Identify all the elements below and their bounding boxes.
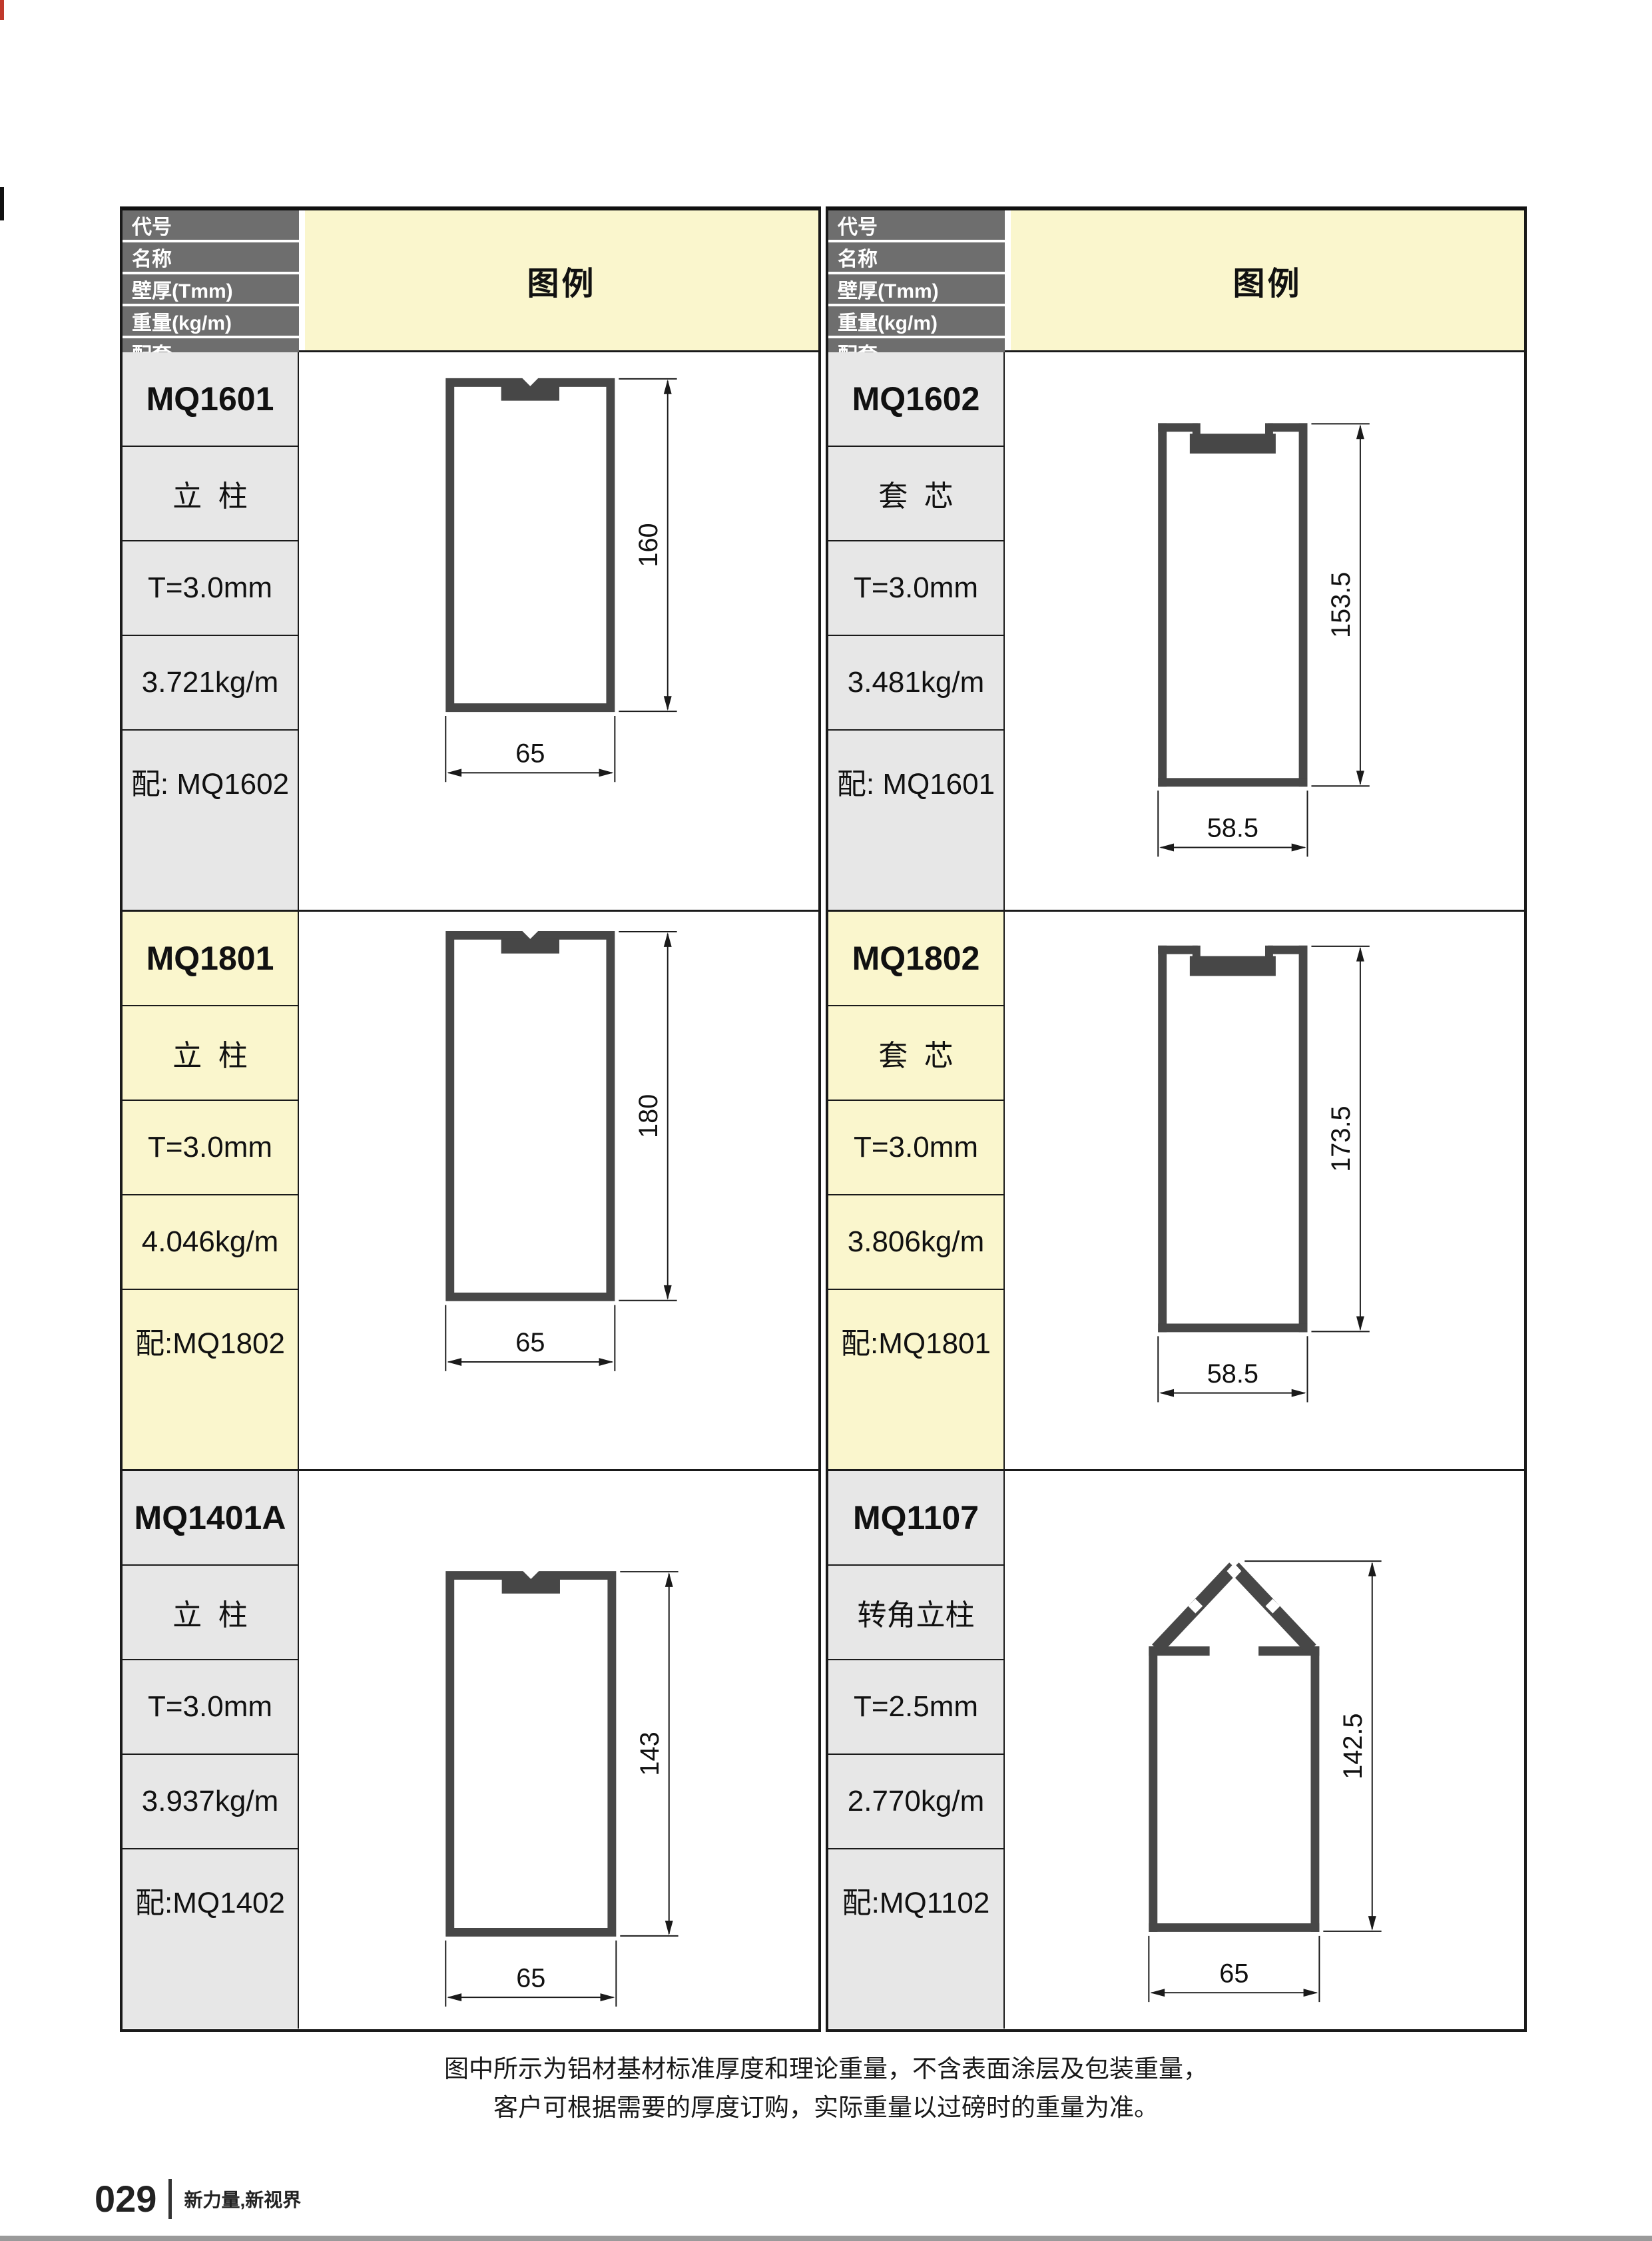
profile-illustration: 153.558.5 — [1005, 352, 1524, 910]
profile-row-mq1802: MQ1802 套 芯 T=3.0mm 3.806kg/m 配:MQ1801 17… — [828, 910, 1524, 1469]
svg-text:173.5: 173.5 — [1326, 1106, 1356, 1171]
profile-thickness: T=3.0mm — [123, 1101, 298, 1195]
header-row-weight: 重量(kg/m) — [123, 306, 299, 336]
profile-match: 配: MQ1602 — [123, 731, 298, 910]
svg-text:180: 180 — [634, 1094, 663, 1138]
svg-text:160: 160 — [634, 523, 663, 567]
header-row-thickness: 壁厚(Tmm) — [828, 274, 1005, 304]
header-row-weight: 重量(kg/m) — [828, 306, 1005, 336]
bottom-page-bar — [0, 2236, 1652, 2241]
page-footer: 029 新力量,新视界 — [95, 2179, 301, 2219]
profile-illustration: 14365 — [299, 1471, 818, 2029]
profile-weight: 3.806kg/m — [828, 1195, 1003, 1290]
svg-text:58.5: 58.5 — [1207, 814, 1258, 843]
profile-illustration: 16065 — [299, 352, 818, 910]
profile-drawing-mq1802: 173.558.5 — [1005, 912, 1524, 1469]
brand-slogan: 新力量,新视界 — [184, 2186, 301, 2212]
profile-thickness: T=3.0mm — [123, 1660, 298, 1755]
profile-drawing-mq1601: 16065 — [299, 352, 818, 910]
catalog-page: 代号 名称 壁厚(Tmm) 重量(kg/m) 配套 图例 MQ1601 立 柱 … — [0, 0, 1652, 2241]
table-header: 代号 名称 壁厚(Tmm) 重量(kg/m) 配套 图例 — [828, 210, 1524, 352]
legend-header: 图例 — [1011, 210, 1524, 350]
header-row-code: 代号 — [123, 210, 299, 240]
svg-text:58.5: 58.5 — [1207, 1359, 1258, 1389]
profile-illustration: 142.565 — [1005, 1471, 1524, 2029]
table-header: 代号 名称 壁厚(Tmm) 重量(kg/m) 配套 图例 — [123, 210, 818, 352]
profile-name: 套 芯 — [828, 1006, 1003, 1101]
profile-code: MQ1802 — [828, 912, 1003, 1006]
profile-table-left: 代号 名称 壁厚(Tmm) 重量(kg/m) 配套 图例 MQ1601 立 柱 … — [120, 206, 821, 2032]
profile-name: 立 柱 — [123, 1566, 298, 1660]
label-column: MQ1602 套 芯 T=3.0mm 3.481kg/m 配: MQ1601 — [828, 352, 1005, 910]
svg-text:143: 143 — [635, 1732, 665, 1775]
label-column: MQ1601 立 柱 T=3.0mm 3.721kg/m 配: MQ1602 — [123, 352, 299, 910]
profile-illustration: 173.558.5 — [1005, 912, 1524, 1469]
profile-match: 配:MQ1402 — [123, 1849, 298, 2029]
svg-text:65: 65 — [1219, 1959, 1248, 1988]
profile-row-mq1107: MQ1107 转角立柱 T=2.5mm 2.770kg/m 配:MQ1102 1… — [828, 1469, 1524, 2029]
profile-weight: 4.046kg/m — [123, 1195, 298, 1290]
header-gap — [299, 210, 305, 350]
profile-name: 立 柱 — [123, 447, 298, 541]
svg-text:65: 65 — [515, 1328, 545, 1357]
profile-code: MQ1602 — [828, 352, 1003, 447]
profile-weight: 3.937kg/m — [123, 1755, 298, 1849]
profile-name: 转角立柱 — [828, 1566, 1003, 1660]
profile-thickness: T=2.5mm — [828, 1660, 1003, 1755]
svg-text:142.5: 142.5 — [1338, 1713, 1368, 1779]
header-row-thickness: 壁厚(Tmm) — [123, 274, 299, 304]
footer-divider — [168, 2179, 172, 2219]
label-column: MQ1107 转角立柱 T=2.5mm 2.770kg/m 配:MQ1102 — [828, 1471, 1005, 2029]
profile-code: MQ1601 — [123, 352, 298, 447]
header-label-column: 代号 名称 壁厚(Tmm) 重量(kg/m) 配套 — [828, 210, 1005, 350]
profile-drawing-mq1602: 153.558.5 — [1005, 352, 1524, 910]
profile-row-mq1601: MQ1601 立 柱 T=3.0mm 3.721kg/m 配: MQ1602 1… — [123, 352, 818, 910]
header-row-name: 名称 — [828, 242, 1005, 272]
svg-text:153.5: 153.5 — [1326, 572, 1356, 638]
profile-illustration: 18065 — [299, 912, 818, 1469]
header-row-name: 名称 — [123, 242, 299, 272]
profile-weight: 3.481kg/m — [828, 636, 1003, 731]
label-column: MQ1401A 立 柱 T=3.0mm 3.937kg/m 配:MQ1402 — [123, 1471, 299, 2029]
profile-name: 立 柱 — [123, 1006, 298, 1101]
profile-match: 配:MQ1801 — [828, 1290, 1003, 1469]
profile-drawing-mq1107: 142.565 — [1005, 1471, 1524, 2029]
header-row-code: 代号 — [828, 210, 1005, 240]
profile-weight: 3.721kg/m — [123, 636, 298, 731]
profile-table-right: 代号 名称 壁厚(Tmm) 重量(kg/m) 配套 图例 MQ1602 套 芯 … — [826, 206, 1527, 2032]
profile-thickness: T=3.0mm — [828, 541, 1003, 636]
profile-match: 配: MQ1601 — [828, 731, 1003, 910]
profile-row-mq1801: MQ1801 立 柱 T=3.0mm 4.046kg/m 配:MQ1802 18… — [123, 910, 818, 1469]
profile-name: 套 芯 — [828, 447, 1003, 541]
header-gap — [1005, 210, 1011, 350]
svg-text:65: 65 — [516, 1963, 545, 1993]
profile-row-mq1401a: MQ1401A 立 柱 T=3.0mm 3.937kg/m 配:MQ1402 1… — [123, 1469, 818, 2029]
page-number: 029 — [95, 2180, 156, 2218]
profile-code: MQ1801 — [123, 912, 298, 1006]
profile-match: 配:MQ1802 — [123, 1290, 298, 1469]
profile-thickness: T=3.0mm — [828, 1101, 1003, 1195]
footer-note-line1: 图中所示为铝材基材标准厚度和理论重量，不含表面涂层及包装重量， — [0, 2049, 1652, 2084]
profile-drawing-mq1401a: 14365 — [299, 1471, 818, 2029]
profile-code: MQ1107 — [828, 1471, 1003, 1566]
label-column: MQ1801 立 柱 T=3.0mm 4.046kg/m 配:MQ1802 — [123, 912, 299, 1469]
profile-row-mq1602: MQ1602 套 芯 T=3.0mm 3.481kg/m 配: MQ1601 1… — [828, 352, 1524, 910]
profile-weight: 2.770kg/m — [828, 1755, 1003, 1849]
profile-drawing-mq1801: 18065 — [299, 912, 818, 1469]
print-mark-red — [0, 0, 4, 20]
footer-note-line2: 客户可根据需要的厚度订购，实际重量以过磅时的重量为准。 — [0, 2087, 1652, 2123]
print-mark-black — [0, 187, 4, 220]
profile-code: MQ1401A — [123, 1471, 298, 1566]
svg-text:65: 65 — [515, 739, 545, 768]
profile-thickness: T=3.0mm — [123, 541, 298, 636]
legend-header: 图例 — [305, 210, 818, 350]
header-label-column: 代号 名称 壁厚(Tmm) 重量(kg/m) 配套 — [123, 210, 299, 350]
profile-match: 配:MQ1102 — [828, 1849, 1003, 2029]
label-column: MQ1802 套 芯 T=3.0mm 3.806kg/m 配:MQ1801 — [828, 912, 1005, 1469]
